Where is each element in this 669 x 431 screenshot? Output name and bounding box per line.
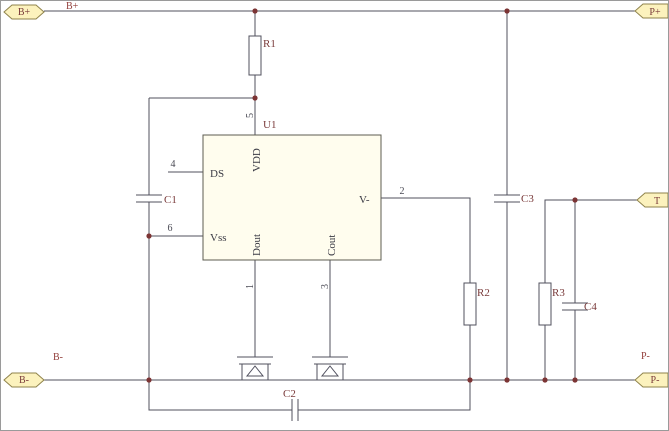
junction-dot <box>572 377 577 382</box>
net-label-p-minus: P- <box>641 351 650 362</box>
junction-dot <box>542 377 547 382</box>
junction-dot <box>504 377 509 382</box>
mosfet-q1 <box>237 357 273 380</box>
pin-name-v-minus: V- <box>359 194 370 206</box>
resistor-r3: R3 <box>539 283 565 325</box>
capacitor-c1: C1 <box>136 194 177 206</box>
wire-c2-right <box>298 380 470 410</box>
port-shape <box>637 193 668 207</box>
schematic-canvas: R1 R2 R3 C1 C2 C3 C4 U1 VDD DS Vss <box>0 0 669 431</box>
pin-number-5: 5 <box>245 113 256 118</box>
designator-c2: C2 <box>283 388 296 400</box>
junction-dot <box>572 197 577 202</box>
pin-name-cout: Cout <box>326 235 338 256</box>
designator-r1: R1 <box>263 38 276 50</box>
junction-dot <box>467 377 472 382</box>
ic-u1: U1 VDD DS Vss Dout Cout V- 5 4 6 1 3 2 <box>168 113 405 289</box>
pin-number-4: 4 <box>171 159 176 170</box>
designator-r3: R3 <box>552 287 565 299</box>
designator-u1: U1 <box>263 119 276 131</box>
wire-t-r3 <box>545 200 637 283</box>
net-label-b-plus: B+ <box>66 1 79 12</box>
port-b-plus: B+ <box>4 5 44 19</box>
designator-c1: C1 <box>164 194 177 206</box>
junction-dot <box>146 233 151 238</box>
resistor-r1: R1 <box>249 36 276 75</box>
pin-number-2: 2 <box>400 186 405 197</box>
junction-dot <box>252 95 257 100</box>
junction-dot <box>504 8 509 13</box>
pin-name-dout: Dout <box>251 234 263 256</box>
port-label-b-plus: B+ <box>18 7 31 18</box>
wire-pin2-r2 <box>381 198 470 283</box>
junction-dot <box>252 8 257 13</box>
port-label-t: T <box>654 196 660 207</box>
designator-c3: C3 <box>521 193 534 205</box>
pin-number-6: 6 <box>168 223 173 234</box>
designator-c4: C4 <box>584 301 597 313</box>
net-label-b-minus: B- <box>53 352 63 363</box>
resistor-body <box>464 283 476 325</box>
capacitor-c2: C2 <box>283 388 298 421</box>
port-label-p-plus: P+ <box>649 7 661 18</box>
wire-c2-left <box>149 380 292 410</box>
port-p-minus: P- <box>635 373 668 387</box>
designator-r2: R2 <box>477 287 490 299</box>
resistor-body <box>249 36 261 75</box>
port-label-p-minus: P- <box>651 375 660 386</box>
port-p-plus: P+ <box>635 4 668 18</box>
pin-name-vdd: VDD <box>251 148 263 172</box>
pin-number-1: 1 <box>245 284 256 289</box>
pin-name-vss: Vss <box>210 232 227 244</box>
mosfet-arrow <box>247 366 263 376</box>
mosfet-arrow <box>322 366 338 376</box>
resistor-r2: R2 <box>464 283 490 325</box>
port-label-b-minus: B- <box>19 375 29 386</box>
pin-name-ds: DS <box>210 168 224 180</box>
junction-dot <box>146 377 151 382</box>
capacitor-c3: C3 <box>494 193 534 205</box>
pin-number-3: 3 <box>320 284 331 289</box>
resistor-body <box>539 283 551 325</box>
circuit-schematic: R1 R2 R3 C1 C2 C3 C4 U1 VDD DS Vss <box>1 1 668 430</box>
capacitor-c4: C4 <box>562 301 597 313</box>
port-b-minus: B- <box>4 373 44 387</box>
port-t: T <box>637 193 668 207</box>
mosfet-q2 <box>312 357 348 380</box>
ic-body <box>203 135 381 260</box>
